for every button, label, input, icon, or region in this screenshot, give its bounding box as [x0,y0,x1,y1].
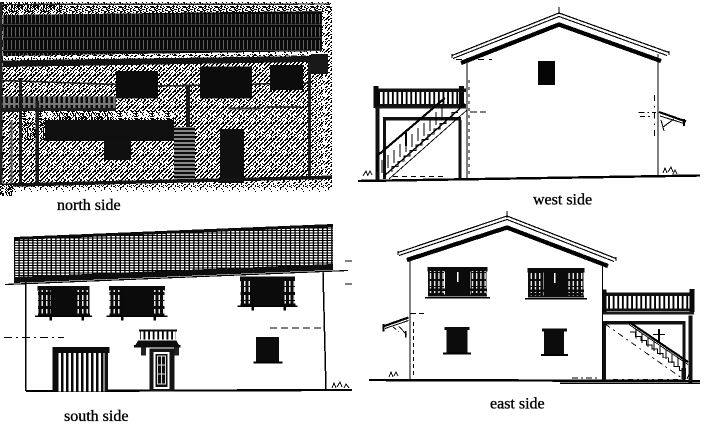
svg-text:west side: west side [533,192,592,209]
svg-text:north side: north side [57,197,121,214]
svg-text:east side: east side [490,396,545,413]
svg-text:south side: south side [64,408,128,425]
